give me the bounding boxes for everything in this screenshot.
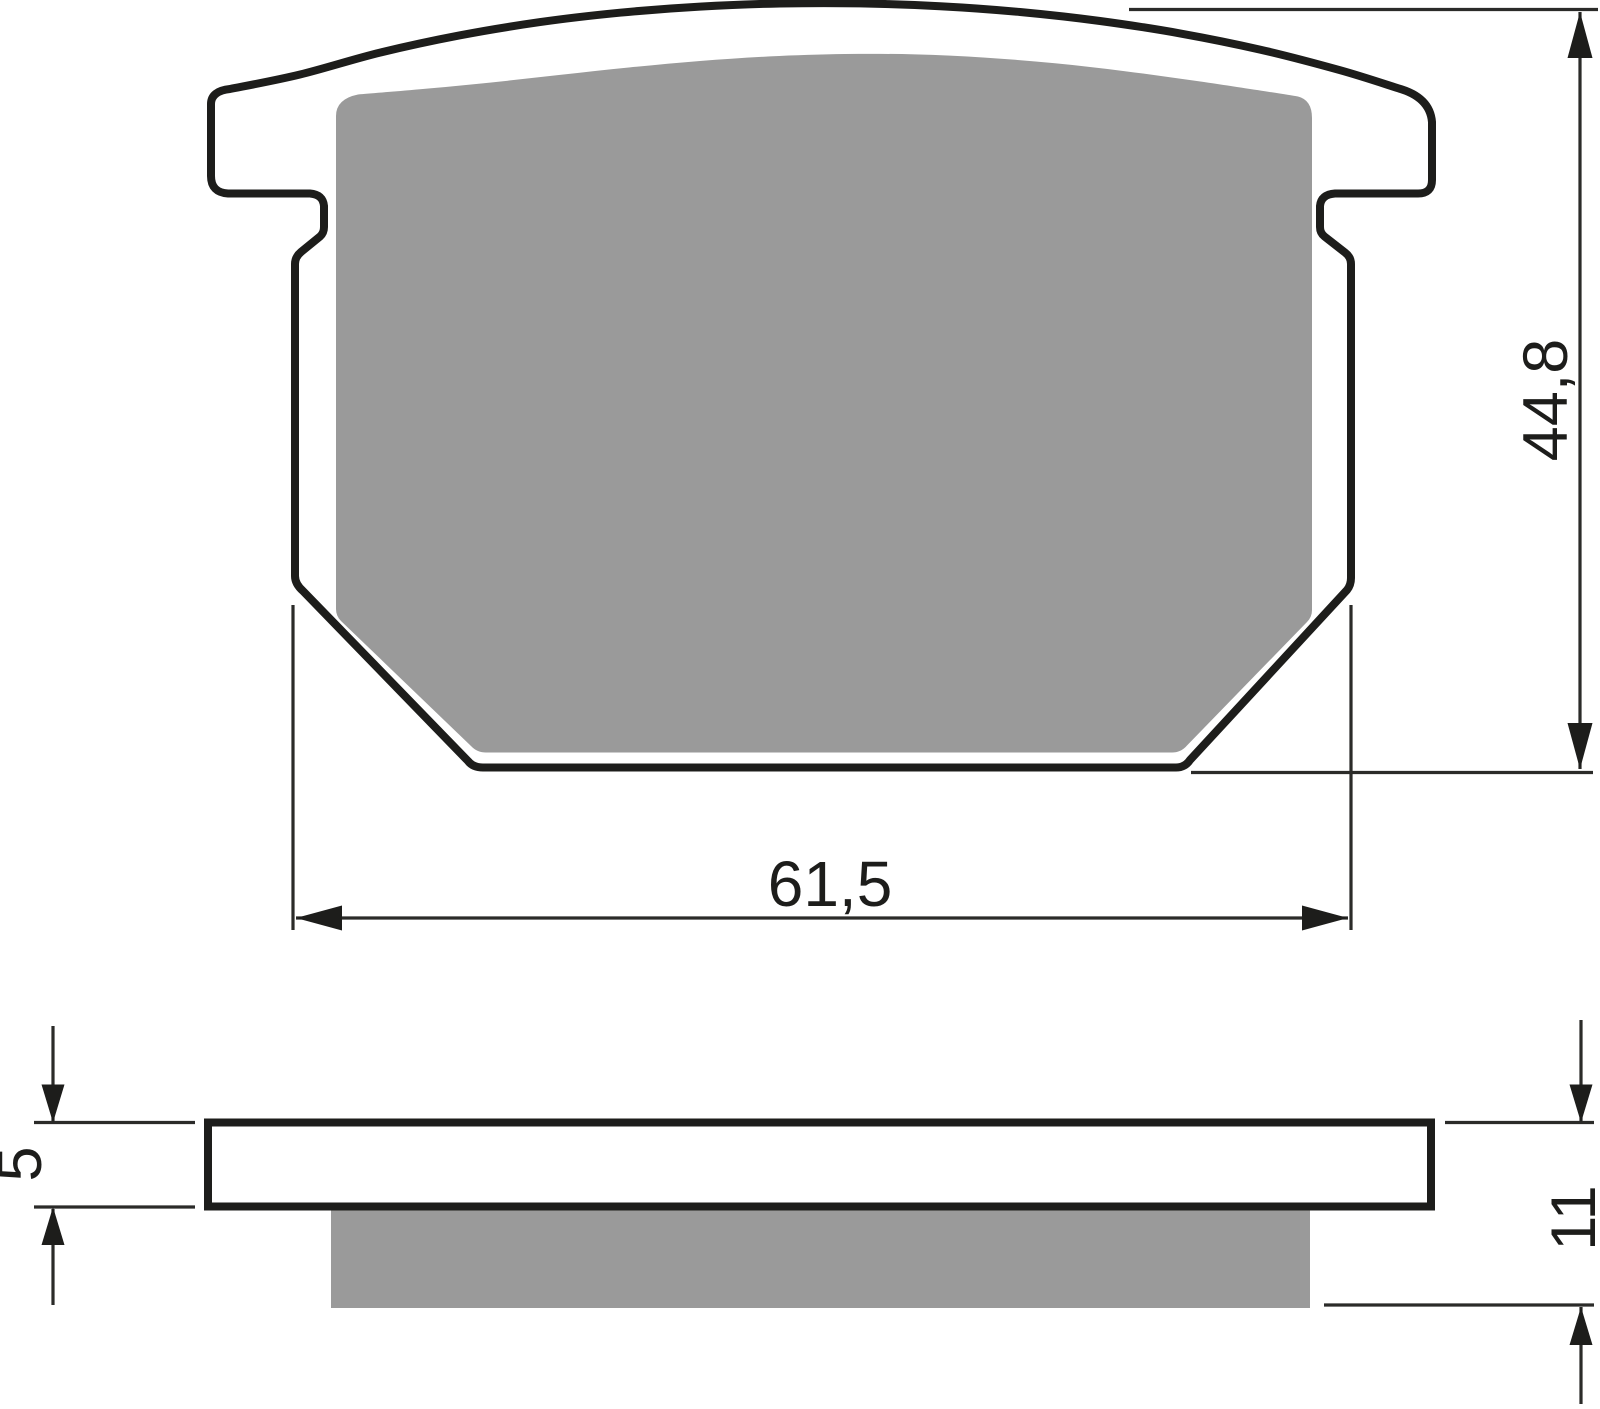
svg-text:11: 11 xyxy=(1539,1185,1600,1250)
svg-text:61,5: 61,5 xyxy=(768,848,893,920)
svg-text:44,8: 44,8 xyxy=(1511,339,1581,462)
svg-text:5: 5 xyxy=(0,1146,55,1181)
